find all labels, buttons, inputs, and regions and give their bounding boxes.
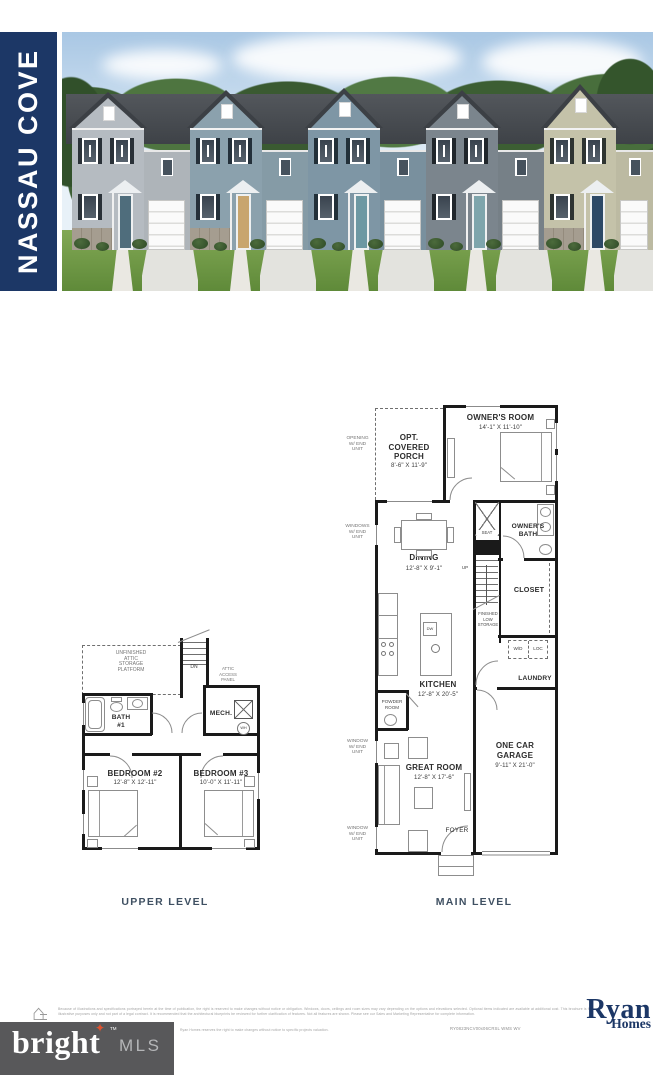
bathtub-inner: [88, 700, 102, 729]
label-attic-access: ATTIC ACCESS PANEL: [213, 666, 243, 683]
bed-pillow-line: [242, 791, 243, 836]
shrub: [450, 242, 463, 251]
mls-watermark-tm: TM: [110, 1026, 117, 1031]
door-arc-owners-room: [450, 478, 472, 500]
shrub: [368, 239, 383, 249]
label-storage: FINISHED LOW STORAGE: [474, 611, 502, 628]
shrub: [192, 238, 208, 249]
builder-logo: Ryan Homes: [563, 996, 651, 1031]
kitchen-counter: [378, 593, 398, 676]
flyer-page: NASSAU COVE UNFINISHED ATTIC STORAGE PLA…: [0, 0, 655, 1080]
plan-code: RY0823NCV00x06CRSL WMS WV: [450, 1026, 521, 1031]
mls-watermark-star-icon: ✦: [95, 1021, 105, 1035]
label-porch: OPT. COVERED PORCH: [383, 433, 435, 462]
nightstand: [87, 839, 98, 848]
label-up: UP: [458, 565, 472, 570]
label-powder: POWDER ROOM: [376, 699, 408, 710]
mls-watermark: bright ✦ TM MLS: [0, 1022, 174, 1075]
door-arc-laundry: [477, 690, 497, 710]
wall: [257, 685, 260, 850]
label-foyer: FOYER: [439, 827, 475, 835]
wall: [206, 638, 209, 687]
door-arc-owners-bath: [503, 536, 524, 558]
wall: [443, 405, 446, 500]
shrub: [214, 242, 227, 251]
garage-door: [482, 851, 550, 856]
window: [555, 423, 558, 449]
label-closet: CLOSET: [503, 585, 555, 595]
toilet: [110, 702, 123, 712]
toilet: [539, 544, 552, 555]
label-bedroom2-dims: 12'-8" X 12'-11": [93, 779, 177, 786]
shrub: [310, 238, 326, 249]
upper-level-caption: UPPER LEVEL: [95, 896, 235, 908]
dining-table: [401, 520, 447, 550]
label-window-note-2: WINDOW W/ END UNIT: [342, 826, 373, 843]
label-attic-storage: UNFINISHED ATTIC STORAGE PLATFORM: [90, 651, 172, 674]
chair: [447, 527, 454, 543]
bed-pillow-line: [99, 791, 100, 836]
wall: [473, 540, 501, 555]
house-icon-bars: [40, 1014, 47, 1020]
burner: [381, 642, 386, 647]
burner: [381, 651, 386, 656]
tv-console: [464, 773, 471, 811]
shrub: [96, 242, 109, 251]
disclaimer-text: Because of illustrations and specificati…: [58, 1007, 592, 1016]
counter-line: [378, 615, 398, 616]
chair: [416, 550, 432, 557]
stoop-step-line: [438, 866, 474, 867]
label-porch-dims: 8'-6" X 11'-9": [383, 462, 435, 469]
shrub: [332, 242, 345, 251]
house-icon: ⌂: [32, 1002, 45, 1024]
shrubs: [62, 32, 653, 291]
wall: [203, 685, 260, 688]
porch-dashed-side: [375, 408, 376, 500]
label-kitchen-dims: 12'-8" X 20'-5": [402, 691, 474, 698]
mls-watermark-brand: bright: [12, 1024, 100, 1061]
shrub: [132, 239, 147, 249]
disclaimer-text-2: Ryan Homes reserves the right to make ch…: [180, 1028, 430, 1033]
armchair: [408, 830, 428, 852]
label-dn: DN: [185, 665, 203, 670]
sink: [132, 699, 143, 708]
window: [555, 455, 558, 481]
toilet-tank: [111, 697, 122, 702]
porch-dashed-top: [375, 408, 443, 409]
wall: [375, 728, 408, 731]
sofa-back-line: [384, 766, 385, 824]
label-laundry: LAUNDRY: [512, 675, 558, 683]
sink: [431, 644, 440, 653]
wall: [82, 693, 152, 696]
label-mech: MECH.: [206, 710, 236, 718]
stair-arrow: [486, 565, 487, 605]
window: [212, 847, 246, 850]
label-windows-note: WINDOWS W/ END UNIT: [342, 524, 373, 541]
door-opening: [503, 558, 524, 561]
door-opening: [450, 500, 473, 503]
main-level-caption: MAIN LEVEL: [404, 896, 544, 908]
label-owners-room: OWNER'S ROOM: [453, 413, 548, 423]
window: [387, 500, 432, 503]
label-wh: WH: [237, 726, 250, 731]
label-loc: LOC: [529, 646, 547, 651]
window: [257, 773, 260, 799]
label-garage-dims: 9'-11" X 21'-0": [485, 762, 545, 769]
main-level-floorplan: SEAT OWNER'S BATH UP CLOSET FINISHED LOW…: [340, 403, 570, 883]
shrub: [428, 238, 444, 249]
shrub: [74, 238, 90, 249]
window: [375, 525, 378, 545]
door-arc-hall: [182, 713, 202, 733]
label-bedroom2: BEDROOM #2: [93, 769, 177, 779]
label-owners-bath: OWNER'S BATH: [503, 523, 553, 539]
bed-pillow-line: [541, 433, 542, 481]
label-kitchen: KITCHEN: [402, 680, 474, 690]
label-great-room-dims: 12'-8" X 17'-6": [396, 774, 472, 781]
wall: [203, 733, 260, 736]
sofa: [378, 765, 400, 825]
label-dining-dims: 12'-8" X 9'-1": [394, 565, 454, 572]
armchair: [384, 743, 399, 759]
label-seat: SEAT: [476, 530, 498, 535]
window: [102, 847, 138, 850]
label-opening-note: OPENING W/ END UNIT: [342, 436, 373, 453]
label-window-note-1: WINDOW W/ END UNIT: [342, 739, 373, 756]
shrub: [604, 239, 619, 249]
window: [82, 770, 85, 790]
water-heater-box: [234, 700, 253, 719]
window: [82, 814, 85, 834]
window: [375, 827, 378, 849]
wall: [443, 405, 558, 408]
label-great-room: GREAT ROOM: [396, 763, 472, 773]
stairs-down: [183, 642, 206, 665]
door-opening: [441, 852, 471, 855]
door-arc-bath1: [152, 713, 172, 733]
dresser: [447, 438, 455, 478]
armchair: [408, 737, 428, 759]
label-bath1: BATH #1: [104, 714, 138, 730]
sink: [540, 507, 551, 517]
community-name-band: NASSAU COVE: [0, 32, 57, 291]
shrub: [486, 239, 501, 249]
coffee-table: [414, 787, 433, 809]
shrub: [546, 238, 562, 249]
wall: [82, 753, 260, 756]
wall: [82, 733, 152, 736]
toilet: [384, 714, 397, 726]
window: [466, 405, 500, 408]
window: [375, 741, 378, 763]
wall: [498, 635, 558, 638]
label-dw: DW: [423, 626, 437, 631]
shrub: [250, 239, 265, 249]
community-name: NASSAU COVE: [0, 32, 57, 291]
window: [82, 703, 85, 725]
counter-line: [378, 638, 398, 639]
wall: [179, 753, 182, 850]
label-owners-room-dims: 14'-1" X 11'-10": [453, 424, 548, 431]
closet-rod: [549, 563, 550, 633]
townhouse-photo: [62, 32, 653, 291]
burner: [389, 642, 394, 647]
nightstand: [87, 776, 98, 787]
nightstand: [546, 485, 555, 495]
mls-watermark-suffix: MLS: [119, 1036, 161, 1056]
upper-level-floorplan: UNFINISHED ATTIC STORAGE PLATFORM DN ATT…: [60, 618, 275, 868]
chair: [394, 527, 401, 543]
burner: [389, 651, 394, 656]
stair-break-line: [178, 629, 210, 643]
door-arc-hall: [476, 661, 498, 685]
nightstand: [244, 776, 255, 787]
shrub: [568, 242, 581, 251]
label-wd: W/D: [509, 646, 527, 651]
chair: [416, 513, 432, 520]
nightstand: [546, 419, 555, 429]
label-garage: ONE CAR GARAGE: [485, 741, 545, 760]
